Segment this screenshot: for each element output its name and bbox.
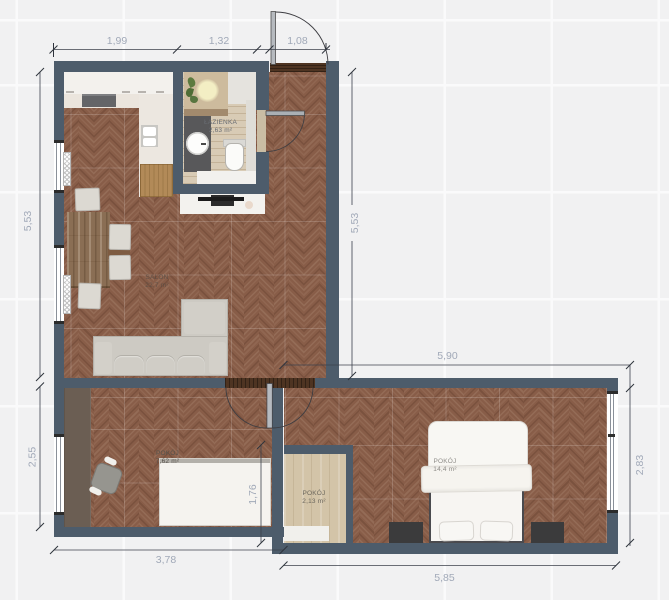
svg-text:1,08: 1,08 bbox=[287, 35, 308, 47]
svg-text:1,76: 1,76 bbox=[247, 484, 259, 505]
svg-text:5,53: 5,53 bbox=[22, 211, 34, 232]
svg-text:5,90: 5,90 bbox=[437, 350, 458, 362]
svg-text:5,53: 5,53 bbox=[349, 213, 361, 234]
svg-text:5,85: 5,85 bbox=[434, 572, 455, 584]
svg-text:2,55: 2,55 bbox=[27, 447, 39, 468]
svg-text:2,83: 2,83 bbox=[634, 455, 646, 476]
svg-text:1,32: 1,32 bbox=[209, 35, 230, 47]
svg-text:1,99: 1,99 bbox=[107, 35, 128, 47]
svg-text:3,78: 3,78 bbox=[156, 554, 177, 566]
